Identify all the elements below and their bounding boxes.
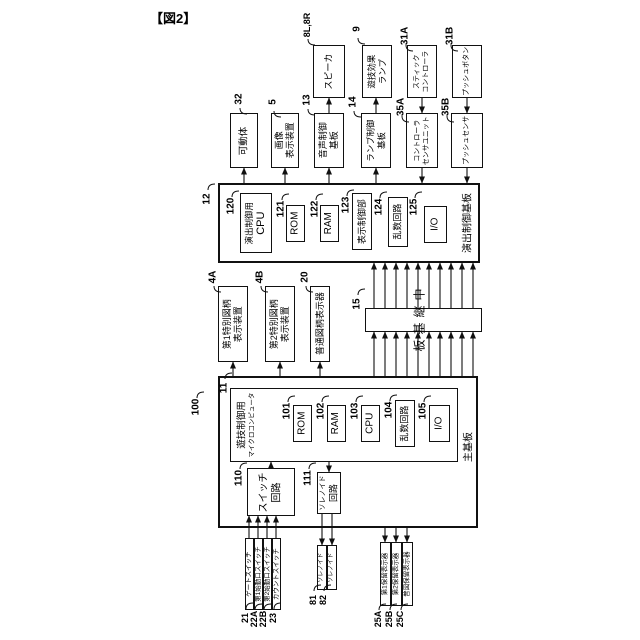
- ref-120: 120: [226, 198, 237, 215]
- main-io-label: I/O: [433, 417, 446, 430]
- effect-control-board-name: 演出制御基板: [459, 193, 474, 253]
- solenoid2-label: ソレノイド: [328, 552, 336, 582]
- relay-board-label: 中継基板: [413, 286, 435, 354]
- box-hold1-display: 第1保留表示器: [380, 542, 391, 606]
- ref-35b: 35B: [441, 98, 452, 116]
- ref-32: 32: [234, 93, 245, 104]
- patent-figure-page: 【図2】 スピーカ 遊技効果ランプ スティックコントローラ プッシュボタン 可動…: [0, 0, 640, 640]
- special1-display-label: 第1特別図柄表示装置: [222, 299, 245, 349]
- gate-switch-label: ゲートスイッチ: [245, 551, 253, 597]
- box-speaker: スピーカ: [313, 45, 345, 98]
- box-normal-hold-display: 普図保留表示器: [402, 542, 413, 606]
- ref-123: 123: [341, 197, 352, 214]
- box-main-ram: RAM: [327, 405, 346, 442]
- switch-circuit-label: スイッチ回路: [259, 472, 284, 512]
- ref-15: 15: [352, 298, 363, 309]
- effect-rom-label: ROM: [289, 212, 302, 235]
- box-display-control: 表示制御部: [352, 193, 372, 250]
- ref-82: 82: [318, 595, 328, 605]
- box-main-rom: ROM: [293, 405, 312, 442]
- ref-105: 105: [418, 403, 429, 420]
- ref-25a: 25A: [373, 611, 383, 628]
- normal-hold-display-label: 普図保留表示器: [403, 551, 411, 597]
- box-solenoid2: ソレノイド: [327, 545, 337, 590]
- game-micro-name: 遊技制御用マイクロコンピュータ: [232, 390, 260, 460]
- ref-12: 12: [202, 193, 213, 204]
- box-lamp-board: ランプ制御基板: [361, 113, 391, 168]
- box-start1-switch: 第1始動口スイッチ: [254, 538, 263, 610]
- box-normal-display: 普通図柄表示器: [310, 286, 330, 362]
- ref-81: 81: [308, 595, 318, 605]
- box-effect-rom: ROM: [286, 205, 305, 242]
- ref-122: 122: [310, 201, 321, 218]
- ref-4a: 4A: [208, 271, 219, 284]
- box-movable-body: 可動体: [230, 113, 258, 168]
- ref-104: 104: [384, 402, 395, 419]
- count-switch-label: カウントスイッチ: [272, 548, 280, 600]
- stick-controller-label: スティックコントローラ: [413, 51, 431, 93]
- ref-100: 100: [191, 399, 202, 416]
- box-stick-controller: スティックコントローラ: [407, 45, 437, 98]
- sound-board-label: 音声制御基板: [318, 122, 341, 158]
- box-solenoid-circuit: ソレノイド回路: [317, 472, 341, 514]
- ref-4b: 4B: [255, 271, 266, 284]
- effect-ram-label: RAM: [323, 212, 336, 234]
- ref-23: 23: [268, 613, 278, 623]
- main-rom-label: ROM: [296, 412, 309, 435]
- ref-121: 121: [276, 201, 287, 218]
- box-solenoid1: ソレノイド: [317, 545, 327, 590]
- box-effect-cpu: 演出制御用CPU: [240, 193, 272, 253]
- main-cpu-label: CPU: [364, 413, 377, 434]
- main-board-name: 主基板: [460, 432, 475, 462]
- box-effect-io: I/O: [424, 206, 447, 243]
- ref-14: 14: [348, 96, 359, 107]
- box-switch-circuit: スイッチ回路: [247, 468, 295, 516]
- box-effect-ram: RAM: [320, 205, 339, 242]
- box-sound-board: 音声制御基板: [314, 113, 344, 168]
- normal-display-label: 普通図柄表示器: [314, 292, 325, 355]
- ref-13: 13: [302, 94, 313, 105]
- main-random-label: 乱数回路: [399, 405, 410, 441]
- ref-20: 20: [300, 271, 311, 282]
- box-effect-random: 乱数回路: [388, 197, 408, 247]
- hold2-display-label: 第2保留表示器: [392, 553, 400, 596]
- box-special1-display: 第1特別図柄表示装置: [218, 286, 248, 362]
- box-controller-sensor: コントローラセンサユニット: [406, 113, 438, 168]
- start2-switch-label: 第2始動口スイッチ: [263, 546, 271, 602]
- ref-110: 110: [234, 470, 245, 486]
- controller-sensor-label: コントローラセンサユニット: [413, 116, 431, 165]
- lamp-board-label: ランプ制御基板: [365, 119, 386, 161]
- push-sensor-label: プッシュセンサ: [463, 116, 472, 165]
- push-button-label: プッシュボタン: [463, 47, 472, 96]
- box-gate-switch: ゲートスイッチ: [245, 538, 254, 610]
- solenoid1-label: ソレノイド: [318, 552, 326, 582]
- ref-101: 101: [282, 403, 293, 420]
- box-start2-switch: 第2始動口スイッチ: [263, 538, 272, 610]
- main-ram-label: RAM: [330, 412, 343, 434]
- ref-35a: 35A: [396, 98, 407, 116]
- box-count-switch: カウントスイッチ: [272, 538, 281, 610]
- movable-body-label: 可動体: [238, 126, 250, 155]
- figure-title: 【図2】: [150, 8, 196, 27]
- box-push-button: プッシュボタン: [452, 45, 482, 98]
- effect-cpu-label: 演出制御用CPU: [244, 202, 268, 245]
- ref-8l8r: 8L,8R: [302, 13, 312, 38]
- solenoid-circuit-label: ソレノイド回路: [319, 476, 339, 511]
- ref-31b: 31B: [445, 27, 456, 45]
- speaker-label: スピーカ: [323, 53, 334, 89]
- start1-switch-label: 第1始動口スイッチ: [254, 546, 262, 602]
- ref-25b: 25B: [384, 611, 394, 628]
- ref-5: 5: [268, 99, 279, 105]
- box-image-display: 画像表示装置: [271, 113, 299, 168]
- box-push-sensor: プッシュセンサ: [451, 113, 483, 168]
- ref-9: 9: [352, 26, 363, 32]
- ref-31a: 31A: [400, 27, 411, 45]
- box-effect-lamp: 遊技効果ランプ: [362, 45, 392, 98]
- box-hold2-display: 第2保留表示器: [391, 542, 402, 606]
- box-main-random: 乱数回路: [395, 400, 415, 447]
- ref-111: 111: [303, 470, 314, 486]
- display-control-label: 表示制御部: [356, 199, 367, 244]
- box-special2-display: 第2特別図柄表示装置: [265, 286, 295, 362]
- effect-lamp-label: 遊技効果ランプ: [366, 54, 387, 88]
- ref-22b: 22B: [258, 611, 268, 628]
- box-main-cpu: CPU: [361, 405, 380, 442]
- ref-103: 103: [350, 403, 361, 420]
- image-display-label: 画像表示装置: [274, 122, 297, 158]
- effect-random-label: 乱数回路: [392, 204, 403, 240]
- special2-display-label: 第2特別図柄表示装置: [269, 299, 292, 349]
- ref-11: 11: [219, 383, 230, 394]
- hold1-display-label: 第1保留表示器: [381, 553, 389, 596]
- ref-125: 125: [409, 199, 420, 216]
- ref-25c: 25C: [395, 611, 405, 628]
- effect-io-label: I/O: [429, 218, 442, 231]
- ref-124: 124: [374, 199, 385, 216]
- box-relay-board: 中継基板: [365, 308, 482, 332]
- ref-102: 102: [316, 403, 327, 420]
- box-main-io: I/O: [429, 405, 450, 442]
